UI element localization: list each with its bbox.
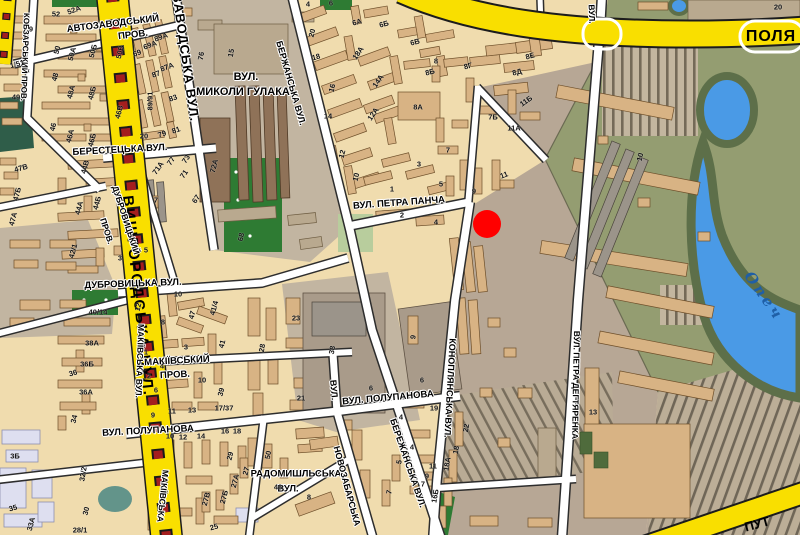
building: [492, 160, 500, 190]
building: [78, 74, 85, 81]
building: [186, 476, 212, 484]
building: [184, 442, 192, 468]
building: [14, 260, 38, 268]
building: [0, 68, 18, 75]
building: [598, 136, 608, 144]
building: [538, 428, 556, 480]
building: [446, 176, 454, 196]
pond-small-green: [98, 486, 132, 512]
building: [470, 516, 498, 526]
building: [398, 92, 440, 120]
building: [60, 300, 86, 308]
building: [214, 516, 238, 524]
building: [198, 402, 218, 410]
building: [2, 118, 22, 125]
building: [518, 388, 532, 398]
building: [584, 424, 690, 518]
building: [382, 480, 390, 506]
building: [240, 458, 248, 478]
building: [46, 34, 96, 41]
building: [528, 518, 552, 527]
building: [520, 112, 540, 120]
building: [585, 368, 599, 430]
building: [84, 124, 91, 131]
building: [182, 337, 205, 347]
building: [508, 90, 516, 114]
building: [4, 172, 18, 179]
building: [6, 450, 38, 462]
building: [638, 2, 668, 10]
building: [452, 120, 468, 128]
building: [296, 427, 325, 439]
building: [0, 188, 14, 195]
building: [216, 490, 224, 510]
building: [498, 438, 510, 447]
building: [480, 388, 492, 397]
building: [504, 348, 516, 357]
building: [266, 308, 276, 340]
building: [50, 240, 76, 248]
building: [444, 478, 452, 506]
building: [500, 180, 514, 188]
building: [594, 452, 608, 468]
building: [96, 248, 104, 266]
building: [698, 232, 710, 241]
building: [436, 118, 444, 142]
building: [202, 492, 210, 512]
building: [488, 318, 500, 327]
building: [0, 158, 16, 165]
building: [455, 412, 463, 446]
building: [438, 146, 458, 154]
building: [202, 440, 210, 464]
building: [10, 240, 40, 248]
map-canvas: [0, 0, 800, 535]
building: [248, 298, 260, 336]
lake-opechen: [700, 76, 754, 144]
building: [4, 514, 42, 527]
location-marker[interactable]: [473, 210, 501, 238]
building: [408, 316, 418, 344]
building: [638, 198, 650, 207]
building: [172, 402, 192, 410]
building: [44, 16, 102, 24]
building: [2, 430, 40, 444]
building: [58, 416, 66, 430]
building: [4, 84, 24, 91]
building: [62, 358, 102, 366]
building: [392, 455, 400, 481]
building: [312, 302, 366, 336]
building: [70, 26, 77, 33]
building: [58, 336, 104, 344]
building: [214, 24, 288, 74]
city-map[interactable]: ВИШГОРОДСЬКА ВУЛ.КОБЗАРСЬКИЙ ПРОВ.АВТОЗА…: [0, 0, 800, 535]
building: [248, 358, 260, 390]
building: [38, 502, 54, 522]
building: [230, 474, 238, 494]
building: [60, 402, 96, 410]
building: [449, 450, 457, 482]
building: [20, 300, 50, 310]
building: [46, 262, 76, 270]
building: [58, 380, 102, 388]
building: [0, 102, 18, 109]
building: [286, 298, 300, 324]
pond-top: [670, 0, 688, 14]
building: [194, 372, 202, 398]
building: [42, 102, 90, 109]
building: [220, 442, 228, 466]
building: [432, 66, 440, 82]
building: [580, 432, 592, 454]
building: [280, 458, 288, 478]
